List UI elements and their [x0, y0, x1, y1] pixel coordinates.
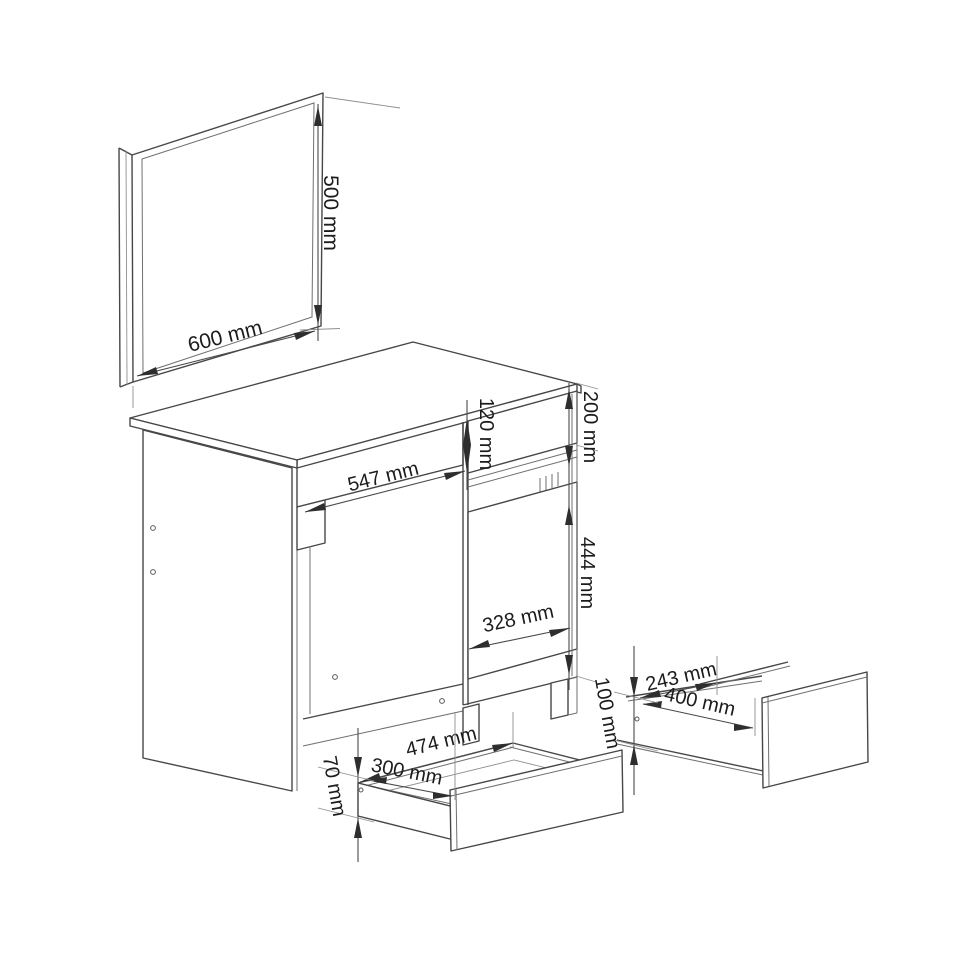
side-drawer-hole [635, 717, 639, 721]
dim-center-drawer-depth-label: 300 mm [369, 754, 444, 789]
dim-side-drawer-height-label: 100 mm [590, 676, 624, 751]
desk-left-side-panel [143, 430, 292, 791]
dim-center-drawer-width-label: 474 mm [404, 723, 479, 762]
cabinet-door [468, 482, 577, 679]
back-panel-hole [333, 675, 338, 680]
back-panel-hole [440, 699, 445, 704]
technical-drawing-page: 500 mm 600 mm 547 mm 120 mm 200 mm 444 m… [0, 0, 960, 958]
dim-knee-opening-width-label: 547 mm [346, 458, 421, 497]
back-panel-bottom-edge [303, 684, 463, 719]
dim-mirror-height-label: 500 mm [319, 175, 342, 251]
furniture-technical-drawing: 500 mm 600 mm 547 mm 120 mm 200 mm 444 m… [0, 0, 960, 958]
dim-center-drawer-height-label: 70 mm [318, 754, 350, 818]
dim-top-drawer-front-height-label: 120 mm [475, 398, 497, 470]
dim-top-section-height-label: 200 mm [579, 391, 601, 463]
cabinet-foot-right [551, 679, 568, 719]
dim-door-height-label: 444 mm [576, 537, 598, 609]
center-drawer-side-wall [358, 783, 458, 841]
